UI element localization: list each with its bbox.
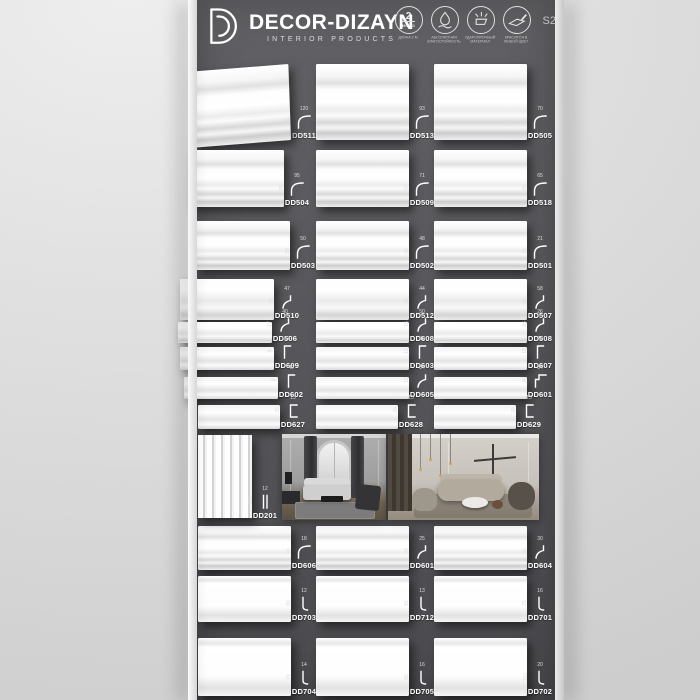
dimension-height-label: 90 (404, 118, 410, 124)
molding-sample (316, 322, 409, 343)
product-cell: 1325DD628 (316, 405, 434, 429)
product-cell: 1844DD606 (198, 526, 316, 570)
molding-sample (316, 64, 409, 140)
product-code: DD629 (517, 420, 541, 429)
wall-panel-line (528, 442, 529, 482)
curtain-left (388, 434, 412, 511)
product-label: 408DD602 (279, 365, 303, 399)
product-label: 12080DD511 (292, 106, 316, 140)
dimension-height-label: 44 (404, 548, 410, 554)
product-label: 1325DD629 (517, 395, 541, 429)
dimension-width-label: 20 (537, 662, 543, 669)
profile-diagram: 9 (278, 343, 296, 360)
profile-icon (295, 113, 313, 130)
molding-sample (434, 150, 527, 207)
pendant-bulb (419, 468, 422, 471)
profile-diagram: 75 (531, 243, 549, 260)
profile-icon (413, 180, 431, 197)
profile-diagram: 44 (295, 543, 313, 560)
product-label: 5050DD503 (291, 236, 315, 270)
product-label: 1844DD606 (292, 536, 316, 570)
dimension-width-label: 40 (419, 336, 425, 343)
molding-sample (316, 576, 409, 622)
product-cell: 1325DD629 (434, 405, 552, 429)
product-code: DD509 (410, 198, 434, 207)
product-label: 9575DD504 (285, 173, 309, 207)
product-code: DD511 (292, 131, 316, 140)
dimension-height-label: 130 (248, 497, 254, 505)
dimension-height-label: 40 (404, 248, 410, 254)
product-code: DD501 (528, 261, 552, 270)
dimension-height-label: 79 (286, 674, 292, 680)
profile-icon (295, 595, 313, 612)
product-code: DD704 (292, 687, 316, 696)
product-code: DD702 (528, 687, 552, 696)
product-cell: 9390DD513 (316, 64, 434, 140)
profile-icon (413, 113, 431, 130)
product-label: 2544DD601 (410, 536, 434, 570)
panel-label: 12130DD201 (253, 486, 277, 520)
product-code: DD505 (528, 131, 552, 140)
profile-diagram: 90 (413, 113, 431, 130)
molding-sample (434, 64, 527, 140)
product-code: DD628 (399, 420, 423, 429)
dimension-width-label: 47 (284, 286, 290, 293)
dimension-width-label: 50 (300, 236, 306, 243)
product-cell: 4725DD510 (198, 279, 316, 320)
product-code: DD601 (410, 561, 434, 570)
dimension-width-label: 52 (284, 336, 290, 343)
dimension-height-label: 25 (511, 407, 517, 413)
dimension-height-label: 8 (271, 379, 277, 382)
product-code: DD712 (410, 613, 434, 622)
molding-sample (184, 377, 278, 399)
dimension-height-label: 95 (404, 674, 410, 680)
dimension-width-label: 40 (282, 309, 288, 316)
dimension-width-label: 34 (537, 365, 543, 372)
molding-sample (316, 638, 409, 696)
product-label: 3030DD604 (528, 536, 552, 570)
dimension-width-label: 50 (419, 309, 425, 316)
product-label: 1280DD703 (292, 588, 316, 622)
brand-name: DECOR-DIZAYN (249, 11, 414, 35)
molding-sample (198, 405, 280, 429)
product-cell: 12080DD511 (198, 64, 316, 140)
impact-resistance-badge: УДАРОПРОЧНЫЙ МАТЕРИАЛ (464, 6, 497, 49)
product-label: 9390DD513 (410, 106, 434, 140)
dimension-height-label: 45 (522, 185, 528, 191)
product-cell: 9575DD504 (198, 150, 316, 207)
molding-sample (316, 526, 409, 570)
product-label: 1675DD701 (528, 588, 552, 622)
coffee-table (462, 497, 488, 508)
wall-art (474, 456, 516, 462)
badge-caption: УДАРОПРОЧНЫЙ МАТЕРИАЛ (464, 36, 498, 44)
dimension-height-label: 16 (522, 321, 528, 327)
profile-diagram: 15 (531, 343, 549, 360)
profile-diagram: 75 (531, 595, 549, 612)
profile-icon (413, 343, 431, 360)
paint-brush-badge: КРАСИТСЯ В ЛЮБОЙ ЦВЕТ (500, 6, 533, 49)
dimension-width-label: 95 (294, 173, 300, 180)
dimension-height-label: 44 (286, 548, 292, 554)
pendant-light (430, 434, 431, 458)
armchair-right (508, 482, 535, 510)
board-header: DECOR-DIZAYN INTERIOR PRODUCTS 2метраДЛИ… (199, 0, 553, 57)
profile-icon (276, 316, 294, 333)
dimension-width-label: 120 (300, 106, 308, 113)
product-code: DD705 (410, 687, 434, 696)
dimension-height-label: 80 (286, 600, 292, 606)
dimension-height-label: 25 (404, 298, 410, 304)
pendant-bulb (449, 462, 452, 465)
product-row: 4017DD5065016DD6082616DD508 (198, 322, 554, 343)
product-code: DD513 (410, 131, 434, 140)
interior-photo-classic (282, 434, 386, 520)
product-label: 3412DD605 (410, 365, 434, 399)
product-cell: 3030DD604 (434, 526, 552, 570)
dimension-width-label: 65 (537, 173, 543, 180)
display-stand: DECOR-DIZAYN INTERIOR PRODUCTS 2метраДЛИ… (188, 0, 564, 700)
profile-icon (284, 402, 302, 419)
dimension-width-label: 34 (419, 365, 425, 372)
molding-sample (198, 576, 291, 622)
product-cell: 1675DD701 (434, 576, 552, 622)
profile-diagram: 50 (294, 243, 312, 260)
profile-icon (278, 343, 296, 360)
dimension-width-label: 14 (301, 662, 307, 669)
profile-diagram: 12 (413, 343, 431, 360)
dimension-height-label: 30 (522, 548, 528, 554)
board-right-edge (555, 0, 564, 700)
pendant-light (420, 434, 421, 468)
product-cell: 1325DD627 (198, 405, 316, 429)
molding-sample (434, 405, 516, 429)
molding-sample (316, 279, 409, 320)
dimension-height-label: 35 (522, 298, 528, 304)
crown-molding (282, 434, 386, 438)
profile-diagram: 79 (295, 669, 313, 686)
dimension-width-label: 70 (537, 106, 543, 113)
wall-tv (285, 472, 292, 484)
profile-diagram: 16 (413, 316, 431, 333)
dimension-height-label: 25 (393, 407, 399, 413)
molding-sample (434, 377, 527, 399)
profile-diagram: 17 (276, 316, 294, 333)
profile-icon (288, 180, 306, 197)
profile-icon (531, 180, 549, 197)
profile-icon (413, 293, 431, 310)
profile-icon (256, 493, 274, 510)
profile-diagram: 44 (413, 543, 431, 560)
armchair-left (412, 488, 437, 511)
feature-badges: 2метраДЛИНА 2 МАБСОЛЮТНАЯ ВЛАГОСТОЙКОСТЬ… (392, 6, 533, 49)
series-label: S2 (543, 15, 556, 27)
profile-icon (282, 372, 300, 389)
product-code: DD627 (281, 420, 305, 429)
dimension-height-label: 50 (285, 248, 291, 254)
dimension-width-label: 71 (419, 173, 425, 180)
profile-diagram: 25 (520, 402, 538, 419)
profile-diagram: 110 (531, 669, 549, 686)
profile-icon (531, 316, 549, 333)
profile-icon (531, 343, 549, 360)
dimension-width-label: 13 (419, 588, 425, 595)
badge-caption: АБСОЛЮТНАЯ ВЛАГОСТОЙКОСТЬ (428, 36, 462, 44)
molding-sample (434, 322, 527, 343)
dimension-width-label: 26 (537, 309, 543, 316)
profile-diagram: 25 (278, 293, 296, 310)
product-cell: 1479DD704 (198, 638, 316, 696)
dimension-height-label: 25 (275, 407, 281, 413)
dimension-height-label: 17 (267, 321, 273, 327)
profile-diagram: 75 (288, 180, 306, 197)
product-row: 4725DD5104425DD5125835DD507 (198, 279, 554, 320)
product-row: 529DD6094012DD6032815DD607 (198, 347, 554, 370)
product-cell: 1381DD712 (316, 576, 434, 622)
molding-sample (316, 347, 409, 370)
product-label: 20110DD702 (528, 662, 552, 696)
product-label: 1325DD628 (399, 395, 423, 429)
profile-icon (531, 669, 549, 686)
length-2m-icon: 2метра (395, 6, 423, 34)
profile-diagram: 40 (413, 243, 431, 260)
product-cell: 5050DD503 (198, 221, 316, 270)
profile-diagram: 25 (413, 293, 431, 310)
paint-brush-icon (503, 6, 531, 34)
profile-diagram: 25 (402, 402, 420, 419)
brand-titles: DECOR-DIZAYN INTERIOR PRODUCTS (249, 11, 414, 43)
brand-logo-icon (200, 3, 242, 56)
molding-sample (434, 638, 527, 696)
dimension-width-label: 12 (262, 486, 268, 493)
molding-sample (192, 64, 292, 148)
gallery-band: 12130DD201 (198, 434, 554, 520)
coffee-table (321, 496, 343, 502)
molding-sample (198, 638, 291, 696)
profile-icon (295, 669, 313, 686)
armchair (355, 484, 381, 511)
water-drop-icon (431, 6, 459, 34)
dimension-height-label: 15 (522, 348, 528, 354)
dimension-height-label: 81 (404, 600, 410, 606)
profile-icon (531, 243, 549, 260)
profile-diagram: 35 (531, 293, 549, 310)
dimension-height-label: 80 (286, 118, 292, 124)
profile-diagram: 45 (531, 180, 549, 197)
profile-diagram: 12 (413, 372, 431, 389)
molding-sample (316, 377, 409, 399)
profile-diagram: 80 (295, 113, 313, 130)
wall-art (492, 444, 494, 474)
dimension-height-label: 12 (404, 348, 410, 354)
dimension-height-label: 34 (522, 377, 528, 383)
dimension-width-label: 18 (301, 536, 307, 543)
profile-diagram: 8 (282, 372, 300, 389)
product-code: DD604 (528, 561, 552, 570)
product-row: 408DD6023412DD6053434DD601 (198, 377, 554, 399)
dimension-height-label: 70 (404, 185, 410, 191)
product-cell: 6545DD518 (434, 150, 552, 207)
molding-sample (190, 150, 284, 207)
side-table (492, 500, 503, 509)
pendant-light (440, 434, 441, 474)
dimension-height-label: 75 (522, 600, 528, 606)
product-label: 1325DD627 (281, 395, 305, 429)
product-code: DD502 (410, 261, 434, 270)
product-label: 4840DD502 (410, 236, 434, 270)
profile-diagram: 70 (413, 180, 431, 197)
dimension-width-label: 25 (419, 536, 425, 543)
profile-icon (531, 595, 549, 612)
profile-icon (531, 372, 549, 389)
dimension-width-label: 16 (419, 662, 425, 669)
product-code: DD504 (285, 198, 309, 207)
dimension-width-label: 48 (419, 236, 425, 243)
dimension-height-label: 80 (522, 118, 528, 124)
dimension-width-label: 28 (537, 336, 543, 343)
product-label: 1381DD712 (410, 588, 434, 622)
molding-sample (434, 526, 527, 570)
profile-icon (413, 669, 431, 686)
molding-sample (434, 221, 527, 270)
badge-caption: КРАСИТСЯ В ЛЮБОЙ ЦВЕТ (500, 36, 534, 44)
badge-number: 2 (406, 12, 412, 21)
dimension-width-label: 21 (537, 236, 543, 243)
product-row: 1479DD7041695DD70520110DD702 (198, 638, 554, 696)
dimension-height-label: 110 (523, 673, 529, 681)
badge-unit: метра (402, 21, 415, 28)
dimension-width-label: 44 (419, 286, 425, 293)
dimension-width-label: 58 (537, 286, 543, 293)
dimension-width-label: 16 (537, 588, 543, 595)
product-cell: 2175DD501 (434, 221, 552, 270)
product-label: 7080DD505 (528, 106, 552, 140)
pendant-light (450, 434, 451, 462)
product-cell: 20110DD702 (434, 638, 552, 696)
profile-icon (278, 293, 296, 310)
molding-sample (316, 221, 409, 270)
board-left-edge (188, 0, 197, 700)
profile-diagram: 95 (413, 669, 431, 686)
dimension-width-label: 12 (301, 588, 307, 595)
dimension-height-label: 9 (267, 350, 273, 353)
product-cell: 7170DD509 (316, 150, 434, 207)
profile-icon (413, 316, 431, 333)
profile-diagram: 81 (413, 595, 431, 612)
molding-sample (316, 405, 398, 429)
profile-diagram: 34 (531, 372, 549, 389)
product-cell: 2544DD601 (316, 526, 434, 570)
profile-icon (520, 402, 538, 419)
profile-icon (402, 402, 420, 419)
product-cell: 7080DD505 (434, 64, 552, 140)
badge-caption: ДЛИНА 2 М (392, 36, 426, 40)
product-cell: 1280DD703 (198, 576, 316, 622)
profile-diagram: 16 (531, 316, 549, 333)
dimension-width-label: 13 (526, 395, 532, 402)
profile-diagram: 80 (295, 595, 313, 612)
interior-photo-modern (388, 434, 539, 520)
dimension-width-label: 30 (537, 536, 543, 543)
dimension-height-label: 25 (269, 298, 275, 304)
product-label: 2175DD501 (528, 236, 552, 270)
impact-resistance-icon (467, 6, 495, 34)
dimension-height-label: 12 (404, 377, 410, 383)
profile-diagram: 25 (284, 402, 302, 419)
profile-icon (413, 372, 431, 389)
dimension-height-label: 75 (279, 185, 285, 191)
brand-subtitle: INTERIOR PRODUCTS (249, 36, 414, 43)
product-row: 1280DD7031381DD7121675DD701 (198, 576, 554, 622)
product-code: DD201 (253, 511, 277, 520)
water-drop-badge: АБСОЛЮТНАЯ ВЛАГОСТОЙКОСТЬ (428, 6, 461, 49)
product-row: 1325DD6271325DD6281325DD629 (198, 405, 554, 429)
product-code: DD701 (528, 613, 552, 622)
molding-sample (198, 526, 291, 570)
molding-sample (316, 150, 409, 207)
profile-icon (413, 595, 431, 612)
dimension-width-label: 13 (290, 395, 296, 402)
profile-icon (413, 543, 431, 560)
product-row: 9575DD5047170DD5096545DD518 (198, 150, 554, 207)
product-code: DD703 (292, 613, 316, 622)
dimension-height-label: 75 (522, 248, 528, 254)
molding-sample (196, 221, 290, 270)
dimension-width-label: 13 (408, 395, 414, 402)
product-label: 3434DD601 (528, 365, 552, 399)
profile-icon (413, 243, 431, 260)
molding-sample (434, 279, 527, 320)
product-cell: 1695DD705 (316, 638, 434, 696)
profile-icon (531, 113, 549, 130)
product-code: DD606 (292, 561, 316, 570)
product-label: 7170DD509 (410, 173, 434, 207)
profile-icon (294, 243, 312, 260)
dimension-width-label: 93 (419, 106, 425, 113)
product-row: 12080DD5119390DD5137080DD505 (198, 64, 554, 140)
profile-diagram: 30 (531, 543, 549, 560)
profile-diagram: 80 (531, 113, 549, 130)
product-row: 5050DD5034840DD5022175DD501 (198, 221, 554, 270)
product-row: 1844DD6062544DD6013030DD604 (198, 526, 554, 570)
molding-sample (434, 347, 527, 370)
dimension-height-label: 16 (404, 321, 410, 327)
profile-icon (531, 543, 549, 560)
product-label: 6545DD518 (528, 173, 552, 207)
profile-icon (531, 293, 549, 310)
molding-sample (434, 576, 527, 622)
pendant-bulb (429, 458, 432, 461)
dimension-width-label: 40 (288, 365, 294, 372)
product-cell: 4840DD502 (316, 221, 434, 270)
profile-icon (295, 543, 313, 560)
product-label: 1479DD704 (292, 662, 316, 696)
length-2m-badge: 2метраДЛИНА 2 М (392, 6, 425, 49)
fluted-panel-sample (198, 435, 252, 518)
product-code: DD518 (528, 198, 552, 207)
product-label: 1695DD705 (410, 662, 434, 696)
product-code: DD503 (291, 261, 315, 270)
profile-diagram: 130 (256, 493, 274, 510)
